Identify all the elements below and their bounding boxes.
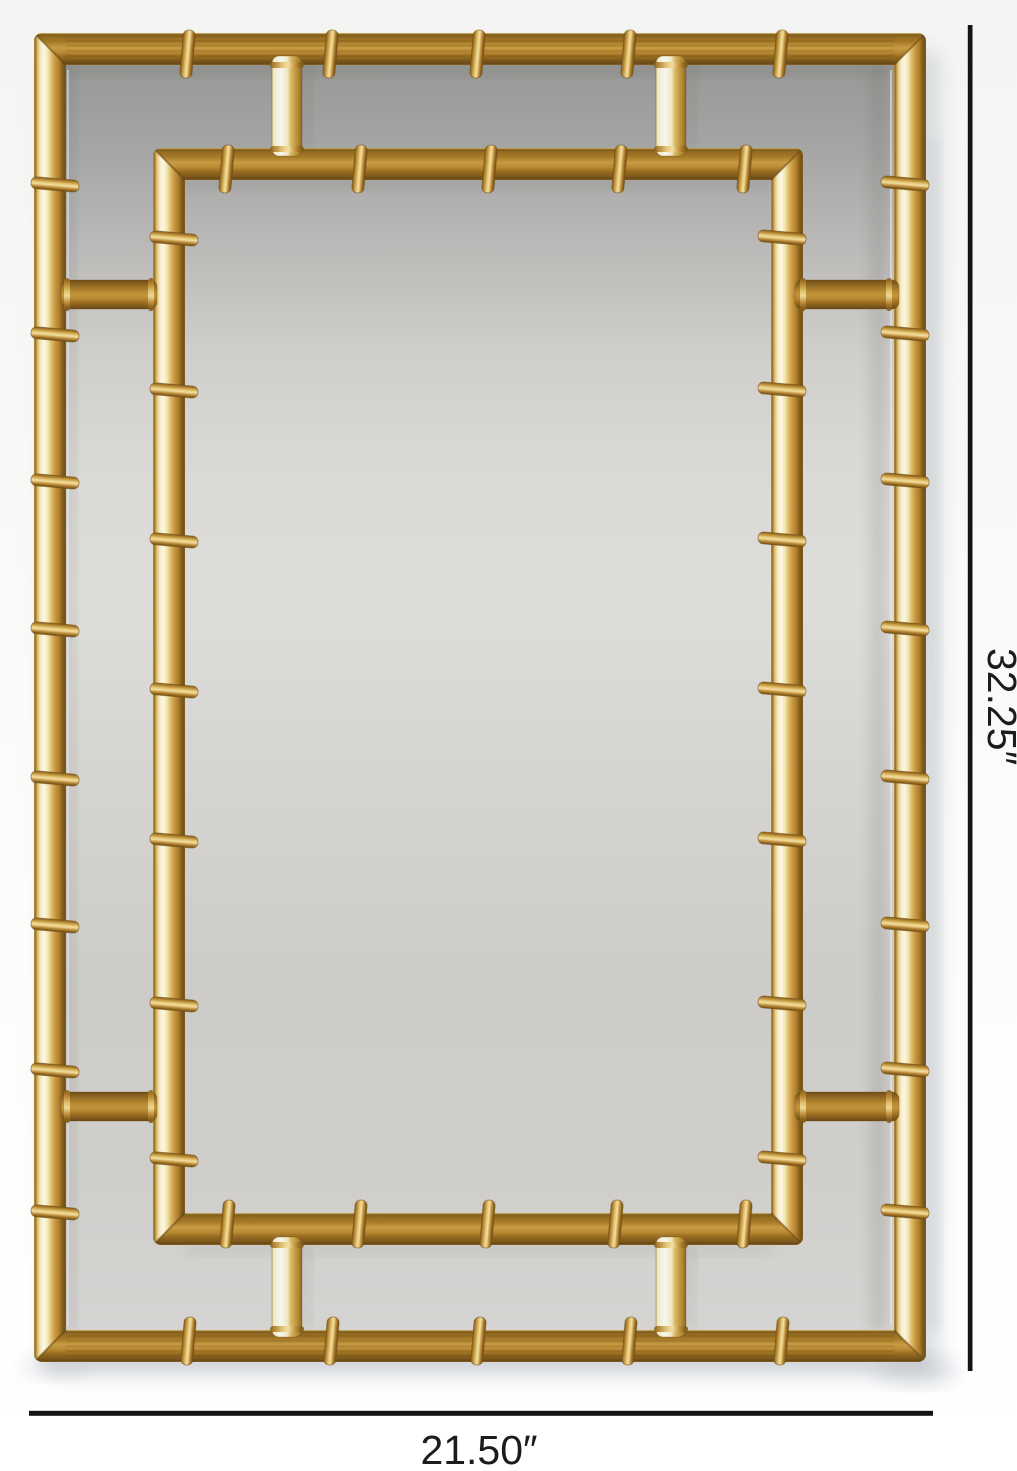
svg-text:21.50″: 21.50″	[420, 1427, 537, 1466]
svg-text:32.25″: 32.25″	[979, 648, 1017, 765]
